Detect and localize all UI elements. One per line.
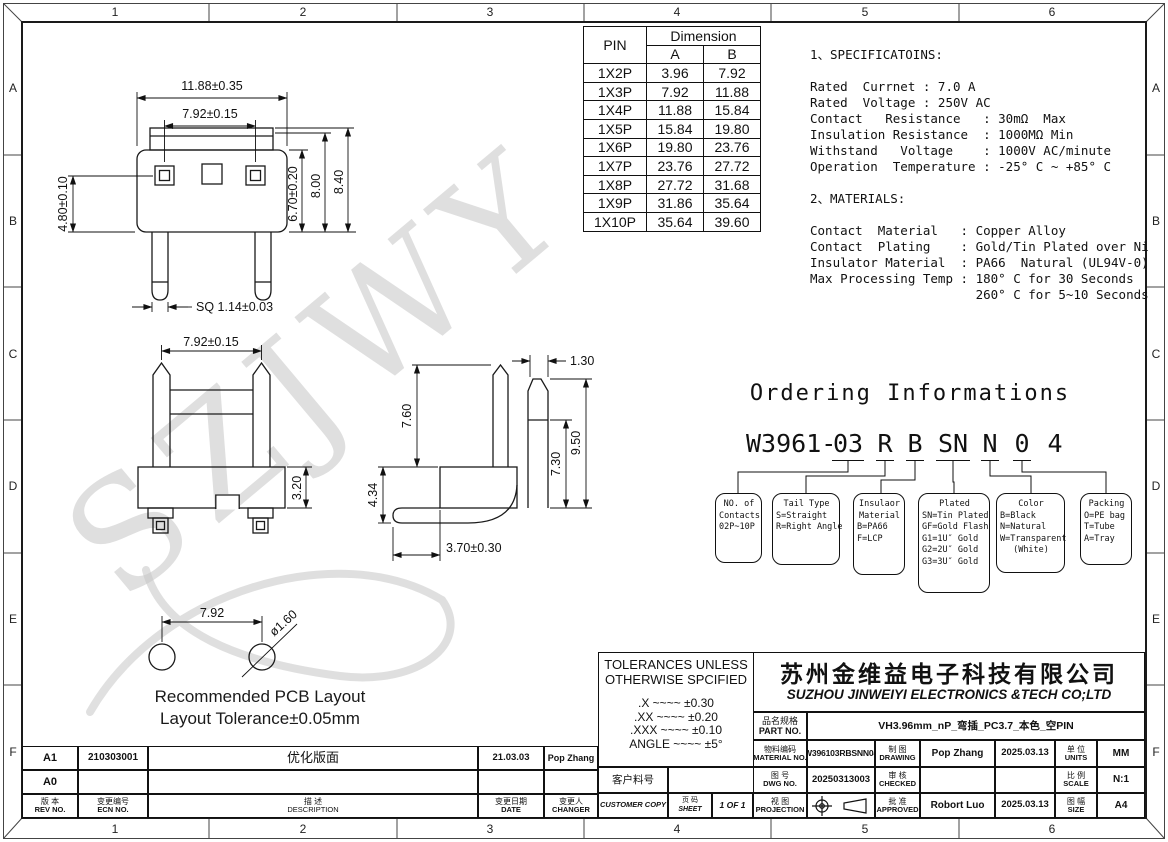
label-en: REV NO.: [35, 806, 66, 815]
pin-cell: 1X6P: [584, 138, 647, 157]
svg-text:7.92±0.15: 7.92±0.15: [182, 107, 238, 121]
svg-text:7.92: 7.92: [200, 606, 224, 620]
label-en: SIZE: [1068, 806, 1085, 815]
front-notch-mask: [216, 494, 239, 510]
approved-label: 批 准 APPROVED: [875, 793, 920, 818]
box-line: B=Black: [1000, 511, 1062, 523]
box-line: W=Transparent: [1000, 534, 1062, 546]
box-line: N=Natural: [1000, 522, 1062, 534]
pcb-holes: [149, 644, 275, 670]
tolerance-title-line2: OTHERWISE SPCIFIED: [605, 673, 747, 688]
top-view-dim-labels: 11.88±0.35 7.92±0.15 4.80±0.10 6.70±0.20…: [56, 79, 346, 314]
svg-text:11.88±0.35: 11.88±0.35: [181, 79, 243, 93]
rev-description-value: [148, 770, 478, 794]
ordering-leader-lines: [690, 458, 1150, 498]
dim-a-cell: 19.80: [647, 138, 704, 157]
front-side-dim-labels: 7.92±0.15 3.20 7.60 1.30 7.30 9.50 4.34 …: [183, 335, 594, 555]
box-line: R=Right Angle: [776, 522, 837, 534]
label-en: DWG NO.: [763, 780, 797, 789]
ecn-no-value: [78, 770, 148, 794]
front-side-view-drawing: 7.92±0.15 3.20 7.60 1.30 7.30 9.50 4.34 …: [120, 335, 610, 600]
part-no-label: 品名规格 PART NO.: [753, 712, 807, 740]
dim-b-cell: 35.64: [704, 194, 761, 213]
ecn-no-header: 变更编号 ECN NO.: [78, 794, 148, 818]
table-row: 1X10P35.6439.60: [584, 212, 761, 231]
pin-cell: 1X2P: [584, 64, 647, 83]
tolerance-row: .XX ~~~~ ±0.20: [634, 711, 718, 725]
box-line: F=LCP: [857, 534, 902, 546]
table-row: 1X8P27.7231.68: [584, 175, 761, 194]
label-en: CHECKED: [879, 780, 916, 789]
dim-b-cell: 27.72: [704, 157, 761, 176]
ordering-title: Ordering Informations: [700, 381, 1120, 406]
box-line: T=Tube: [1084, 522, 1129, 534]
pin-cell: 1X10P: [584, 212, 647, 231]
units-label: 单 位 UNITS: [1055, 740, 1097, 767]
box-line: Packing: [1084, 499, 1129, 511]
ordering-box-contacts: NO. of Contacts 02P~10P: [715, 493, 762, 563]
company-block: 苏州金维益电子科技有限公司 SUZHOU JINWEIYI ELECTRONIC…: [753, 652, 1145, 712]
box-line: O=PE bag: [1084, 511, 1129, 523]
svg-text:8.00: 8.00: [309, 174, 323, 198]
svg-text:7.60: 7.60: [400, 404, 414, 428]
pin-cell: 1X4P: [584, 101, 647, 120]
dwg-no-value: 20250313003: [807, 767, 875, 793]
approved-date-value: 2025.03.13: [995, 793, 1055, 818]
box-line: Plated: [922, 499, 987, 511]
customer-part-label: 客户料号: [598, 767, 668, 793]
box-line: Color: [1000, 499, 1062, 511]
box-line: Tail Type: [776, 499, 837, 511]
box-line: G3=3U″ Gold: [922, 557, 987, 569]
material-no-value: W396103RBSNN04: [807, 740, 875, 767]
top-view-drawing: 11.88±0.35 7.92±0.15 4.80±0.10 6.70±0.20…: [40, 60, 390, 330]
box-line: B=PA66: [857, 522, 902, 534]
label-en: DESCRIPTION: [287, 806, 338, 815]
svg-text:4.80±0.10: 4.80±0.10: [56, 176, 70, 232]
description-header: 描 述 DESCRIPTION: [148, 794, 478, 818]
col-b-header: B: [704, 45, 761, 64]
connector-side-outline: [393, 365, 548, 523]
units-value: MM: [1097, 740, 1145, 767]
dim-a-cell: 3.96: [647, 64, 704, 83]
rev-date-value: [478, 770, 544, 794]
company-name-en: SUZHOU JINWEIYI ELECTRONICS &TECH CO;LTD: [787, 687, 1112, 703]
box-line: G2=2U″ Gold: [922, 545, 987, 557]
svg-text:3.70±0.30: 3.70±0.30: [446, 541, 502, 555]
tolerance-row: ANGLE ~~~~ ±5°: [629, 738, 722, 752]
sheet-value: 1 OF 1: [712, 793, 753, 818]
part-no-value: VH3.96mm_nP_弯插_PC3.7_本色_空PIN: [807, 712, 1145, 740]
svg-text:3.20: 3.20: [290, 476, 304, 500]
tolerance-row: .XXX ~~~~ ±0.10: [630, 724, 722, 738]
label-en: UNITS: [1065, 754, 1088, 763]
dim-b-cell: 23.76: [704, 138, 761, 157]
ordering-box-packing: Packing O=PE bag T=Tube A=Tray: [1080, 493, 1132, 565]
box-line: Insulaor: [857, 499, 902, 511]
box-line: Material: [857, 511, 902, 523]
connector-front-outline: [138, 363, 285, 508]
customer-copy-label: CUSTOMER COPY: [598, 793, 668, 818]
table-row: 1X7P23.7627.72: [584, 157, 761, 176]
ecn-no-value: 210303001: [78, 746, 148, 770]
svg-text:1.30: 1.30: [570, 354, 594, 368]
svg-text:8.40: 8.40: [332, 170, 346, 194]
dim-b-cell: 7.92: [704, 64, 761, 83]
connector-front-details: [148, 495, 273, 533]
svg-text:4.34: 4.34: [366, 483, 380, 507]
col-a-header: A: [647, 45, 704, 64]
dim-a-cell: 23.76: [647, 157, 704, 176]
box-line: 02P~10P: [719, 522, 759, 534]
pcb-dim-labels: 7.92 ø1.60: [200, 606, 300, 639]
svg-text:9.50: 9.50: [569, 431, 583, 455]
table-row: 1X5P15.8419.80: [584, 119, 761, 138]
label-en: DRAWING: [879, 754, 915, 763]
pin-cell: 1X3P: [584, 82, 647, 101]
label-cn: 页 码: [682, 797, 698, 805]
pin-cell: 1X8P: [584, 175, 647, 194]
svg-text:SQ 1.14±0.03: SQ 1.14±0.03: [196, 300, 273, 314]
rev-no-value: A0: [22, 770, 78, 794]
projection-label: 视 图 PROJECTION: [753, 793, 807, 818]
svg-text:ø1.60: ø1.60: [267, 607, 300, 639]
ordering-box-color: Color B=Black N=Natural W=Transparent (W…: [996, 493, 1065, 573]
pin-col-header: PIN: [584, 27, 647, 64]
date-header: 变更日期 DATE: [478, 794, 544, 818]
ordering-box-plating: Plated SN=Tin Plated GF=Gold Flash G1=1U…: [918, 493, 990, 593]
dwg-no-label: 图 号 DWG NO.: [753, 767, 807, 793]
dim-b-cell: 39.60: [704, 212, 761, 231]
tolerance-block: TOLERANCES UNLESS OTHERWISE SPCIFIED .X …: [598, 652, 754, 767]
checked-by-value: [920, 767, 995, 793]
size-label: 图 幅 SIZE: [1055, 793, 1097, 818]
dim-b-cell: 15.84: [704, 101, 761, 120]
material-no-label: 物料编码 MATERIAL NO.: [753, 740, 807, 767]
dim-a-cell: 27.72: [647, 175, 704, 194]
customer-part-value: [668, 767, 754, 793]
ordering-box-insulator: Insulaor Material B=PA66 F=LCP: [853, 493, 905, 575]
top-view-dimensions: [68, 92, 356, 312]
tolerance-title-line1: TOLERANCES UNLESS: [604, 658, 748, 673]
label-en: PART NO.: [759, 726, 801, 736]
dim-a-cell: 11.88: [647, 101, 704, 120]
checked-date-value: [995, 767, 1055, 793]
connector-top-outline: [137, 128, 287, 300]
dim-b-cell: 19.80: [704, 119, 761, 138]
scale-label: 比 例 SCALE: [1055, 767, 1097, 793]
table-row: 1X4P11.8815.84: [584, 101, 761, 120]
dim-a-cell: 31.86: [647, 194, 704, 213]
projection-symbols-icon: [810, 796, 872, 816]
dim-a-cell: 15.84: [647, 119, 704, 138]
dim-a-cell: 35.64: [647, 212, 704, 231]
rev-description-value: 优化版面: [148, 746, 478, 770]
rev-no-header: 版 本 REV NO.: [22, 794, 78, 818]
box-line: SN=Tin Plated: [922, 511, 987, 523]
svg-text:6.70±0.20: 6.70±0.20: [286, 166, 300, 222]
drawing-by-value: Pop Zhang: [920, 740, 995, 767]
rev-no-value: A1: [22, 746, 78, 770]
size-value: A4: [1097, 793, 1145, 818]
changer-header: 变更人 CHANGER: [544, 794, 598, 818]
svg-text:7.92±0.15: 7.92±0.15: [183, 335, 239, 349]
projection-symbols-cell: [807, 793, 875, 818]
box-line: Contacts: [719, 511, 759, 523]
drawing-date-value: 2025.03.13: [995, 740, 1055, 767]
rev-changer-value: Pop Zhang: [544, 746, 598, 770]
box-line: S=Straight: [776, 511, 837, 523]
pcb-layout-drawing: 7.92 ø1.60: [90, 600, 420, 730]
approved-by-value: Robort Luo: [920, 793, 995, 818]
box-line: (White): [1000, 545, 1062, 557]
label-cn: 品名规格: [762, 716, 798, 726]
table-row: 1X9P31.8635.64: [584, 194, 761, 213]
box-line: G1=1U″ Gold: [922, 534, 987, 546]
company-name-cn: 苏州金维益电子科技有限公司: [780, 661, 1118, 687]
table-row: 1X2P3.967.92: [584, 64, 761, 83]
scale-value: N:1: [1097, 767, 1145, 793]
label-en: SHEET: [678, 806, 701, 814]
label-en: MATERIAL NO.: [753, 754, 806, 763]
pin-cell: 1X9P: [584, 194, 647, 213]
svg-text:7.30: 7.30: [549, 452, 563, 476]
ordering-box-tail-type: Tail Type S=Straight R=Right Angle: [772, 493, 840, 565]
label-en: SCALE: [1063, 780, 1088, 789]
pin-cell: 1X5P: [584, 119, 647, 138]
label-en: APPROVED: [876, 806, 918, 815]
specifications-text: 1、SPECIFICATOINS: Rated Currnet : 7.0 A …: [810, 47, 1149, 303]
pin-dimension-table: PIN Dimension A B 1X2P3.967.92 1X3P7.921…: [583, 26, 761, 232]
dimension-col-header: Dimension: [647, 27, 761, 46]
box-line: NO. of: [719, 499, 759, 511]
table-row: 1X3P7.9211.88: [584, 82, 761, 101]
label-en: CHANGER: [552, 806, 590, 815]
label-en: DATE: [501, 806, 521, 815]
rev-changer-value: [544, 770, 598, 794]
tolerance-row: .X ~~~~ ±0.30: [638, 697, 714, 711]
sheet-label: 页 码 SHEET: [668, 793, 712, 818]
dim-a-cell: 7.92: [647, 82, 704, 101]
dim-b-cell: 11.88: [704, 82, 761, 101]
label-en: PROJECTION: [756, 806, 805, 815]
rev-date-value: 21.03.03: [478, 746, 544, 770]
box-line: A=Tray: [1084, 534, 1129, 546]
drawing-label: 制 图 DRAWING: [875, 740, 920, 767]
dim-b-cell: 31.68: [704, 175, 761, 194]
checked-label: 审 核 CHECKED: [875, 767, 920, 793]
table-row: 1X6P19.8023.76: [584, 138, 761, 157]
box-line: GF=Gold Flash: [922, 522, 987, 534]
label-en: ECN NO.: [97, 806, 128, 815]
pin-cell: 1X7P: [584, 157, 647, 176]
